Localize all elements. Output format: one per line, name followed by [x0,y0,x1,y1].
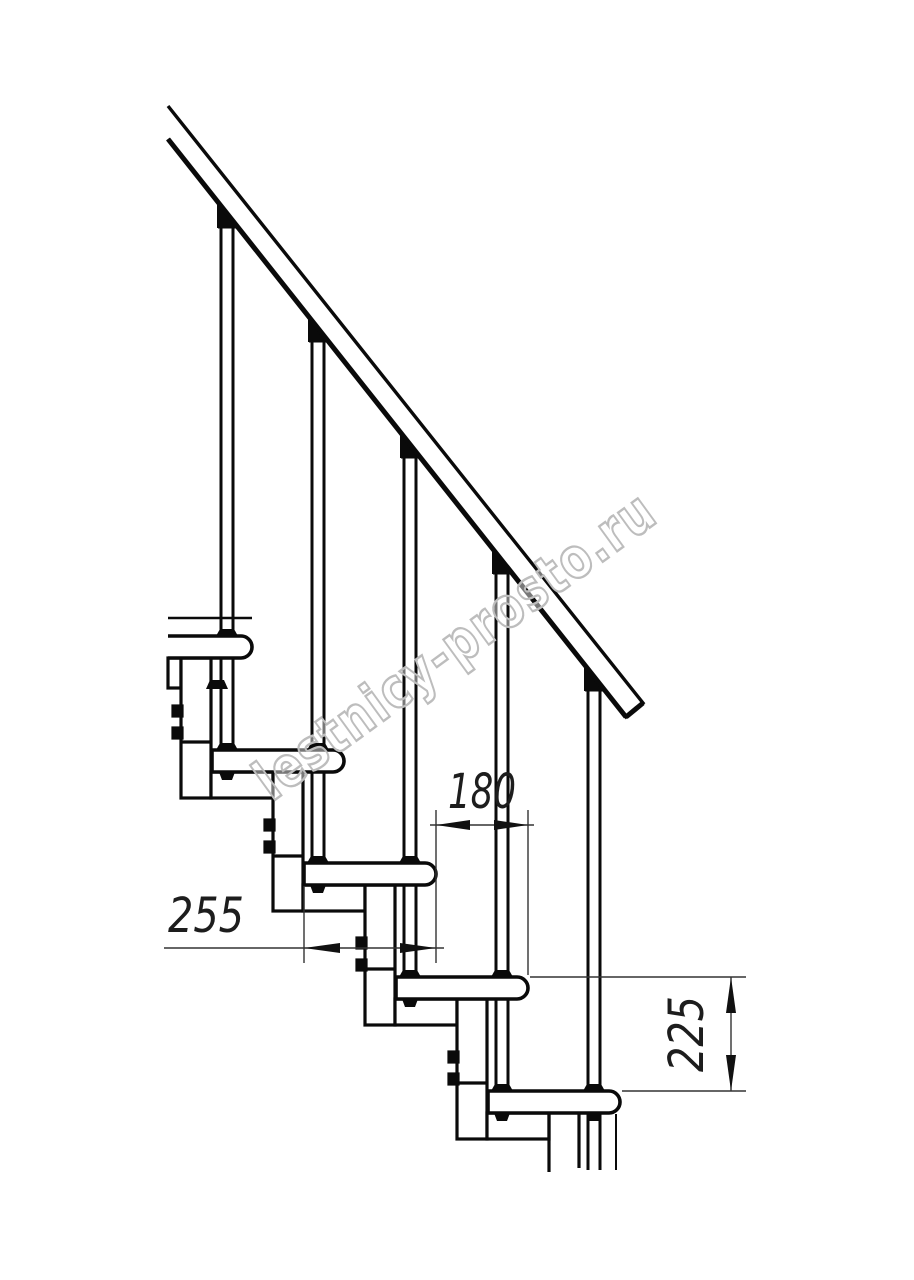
arrowhead [304,943,340,953]
bolt [265,820,274,830]
arrowhead [494,820,528,830]
dimension-label-tread-depth: 255 [168,888,244,944]
support-column [549,1113,579,1172]
connector-plate [168,658,181,688]
arrowhead [436,820,470,830]
baluster [401,457,419,999]
bolt [449,1074,458,1084]
bolt [357,960,366,970]
flange [399,970,421,977]
flange [491,970,513,977]
flange [583,1084,605,1091]
bolt [173,728,182,738]
arrowhead [726,1055,736,1091]
dimension-step-run: 180 [430,764,534,975]
dimension-label-step-run: 180 [448,764,516,820]
tread [488,1091,620,1113]
arrowhead [400,943,436,953]
flange [399,856,421,863]
flange [307,856,329,863]
bolt [265,842,274,852]
tread [304,863,436,885]
staircase-technical-drawing: 255 180 225 lestnicy-prosto.ru [0,0,914,1280]
tread [396,977,528,999]
bolt [173,706,182,716]
bolt [357,938,366,948]
arrowhead [726,977,736,1013]
bolt [449,1052,458,1062]
baluster [218,227,236,772]
drawing-sheet: 255 180 225 lestnicy-prosto.ru [0,0,914,1280]
flange [216,629,238,636]
flange [491,1084,513,1091]
baluster [309,341,327,885]
flange [216,743,238,750]
tread [168,636,252,658]
dimension-label-step-height: 225 [659,996,715,1072]
dimension-step-height: 225 [530,977,746,1091]
